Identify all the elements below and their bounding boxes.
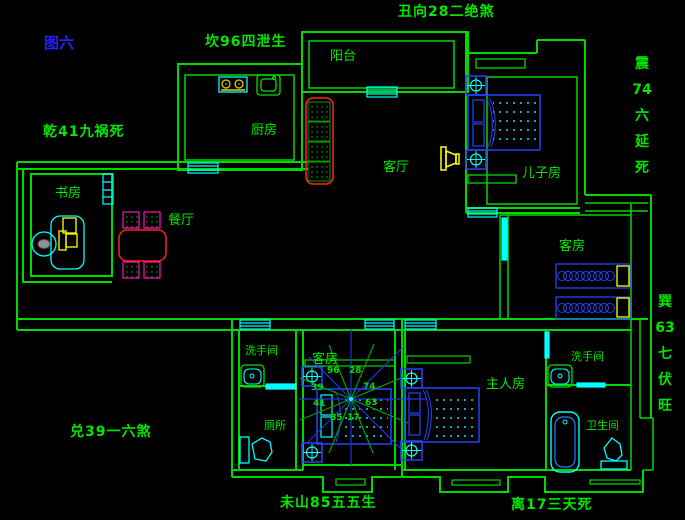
dining-set [119, 212, 166, 278]
room-label-toilet-west: 厕所 [264, 419, 286, 433]
compass-number-63: 63 [365, 399, 378, 408]
compass-number-85: 85 [330, 414, 343, 423]
guest-room-door [502, 218, 507, 260]
room-label-son-bedroom: 儿子房 [522, 167, 561, 181]
compass-number-96: 96 [327, 367, 340, 376]
hall-window-1 [240, 320, 270, 329]
fengshui-label-wei: 未山85五五生 [280, 496, 376, 510]
son-shelf [476, 59, 525, 68]
fengshui-label-kan: 坎96四泄生 [205, 35, 286, 49]
stove [219, 77, 247, 92]
figure-number-label: 图六 [44, 36, 74, 50]
room-label-dining: 餐厅 [168, 214, 194, 228]
dining-chair [144, 212, 160, 228]
master-bath-door [545, 332, 549, 358]
compass-number-41: 41 [313, 400, 326, 409]
dining-table [119, 230, 166, 261]
fengshui-label-li: 离17三天死 [511, 498, 592, 512]
room-label-living: 客厅 [383, 161, 409, 175]
dining-chair [123, 262, 139, 278]
hall-window-2 [365, 320, 394, 329]
room-label-bathroom-master: 卫生间 [586, 419, 619, 433]
dining-chair [144, 262, 160, 278]
master-bath-sink [548, 365, 572, 387]
study-chair [59, 218, 77, 250]
tv [441, 147, 459, 170]
master-bed [405, 388, 479, 442]
study-furniture [32, 216, 84, 269]
kitchen-sink [257, 75, 280, 95]
floor-plan-drawing [0, 0, 685, 520]
room-label-master: 主人房 [486, 378, 525, 392]
west-toilet [240, 437, 272, 463]
compass-number-17: 17 [347, 414, 360, 423]
master-toilet [601, 438, 627, 469]
room-label-balcony: 阳台 [330, 50, 356, 64]
fengshui-label-dui: 兑39一六煞 [70, 425, 151, 439]
room-label-guest-east: 客房 [559, 240, 585, 254]
guest-beds [556, 264, 630, 319]
west-bath-door [266, 384, 296, 389]
room-label-study: 书房 [55, 187, 81, 201]
walls [17, 32, 653, 492]
room-label-guest-center: 客房 [312, 353, 338, 367]
son-shelf-2 [468, 175, 516, 183]
fengshui-label-qian: 乾41九祸死 [43, 125, 124, 139]
fengshui-label-chou: 丑向28二绝煞 [398, 5, 494, 19]
bathtub [551, 412, 579, 472]
master-bath-divider-door [577, 383, 605, 387]
fengshui-label-xun: 巽 63 七 伏 旺 [654, 289, 676, 419]
dining-chair [123, 212, 139, 228]
compass-number-74: 74 [363, 383, 376, 392]
compass-number-39: 39 [311, 384, 324, 393]
fengshui-label-zhen: 震 74 六 延 死 [631, 51, 653, 181]
son-bed [468, 95, 540, 150]
room-label-kitchen: 厨房 [251, 124, 277, 138]
cad-canvas[interactable]: 图六 坎96四泄生 丑向28二绝煞 乾41九祸死 兑39一六煞 未山85五五生 … [0, 0, 685, 520]
hall-window-3 [405, 320, 436, 329]
sofa [306, 98, 333, 184]
room-label-washroom-west: 洗手间 [245, 344, 278, 358]
master-shelf [407, 356, 470, 363]
west-bath-sink [241, 365, 264, 387]
room-label-washroom-master: 洗手间 [571, 350, 604, 364]
compass-number-28: 28 [349, 367, 362, 376]
